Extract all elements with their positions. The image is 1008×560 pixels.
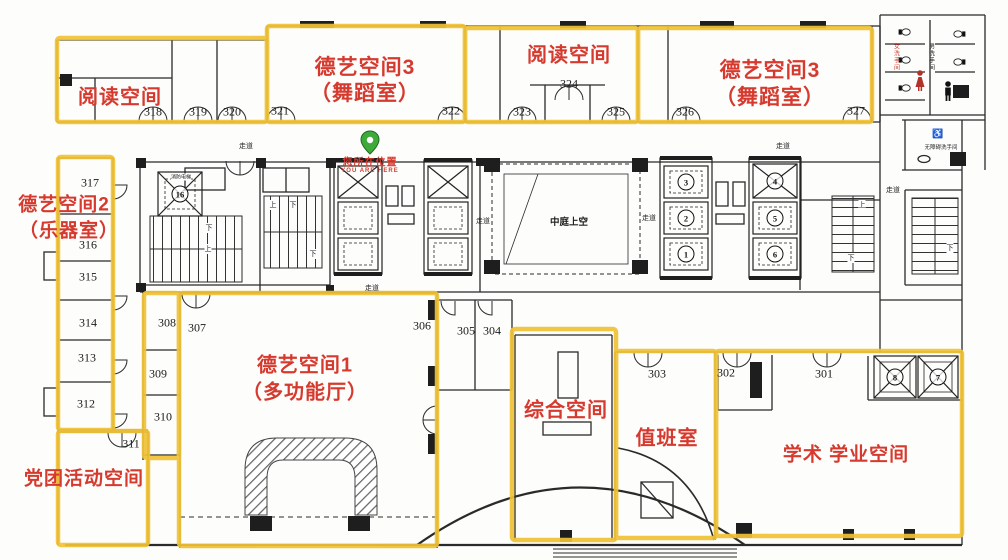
elevator-5-number: 5 (767, 210, 784, 227)
label-party-activity: 党团活动空间 (24, 464, 144, 491)
label-multifunction-line2: （多功能厅） (242, 376, 368, 405)
label-academic: 学术 学业空间 (783, 440, 909, 467)
room-number-325: 325 (607, 105, 625, 120)
label-instrument-line2: （乐器室） (19, 216, 119, 243)
room-number-310: 310 (154, 410, 172, 425)
label-fire-elevator: 消防电梯 (171, 174, 191, 181)
room-number-311: 311 (122, 437, 140, 452)
room-number-309: 309 (149, 367, 167, 382)
label-reading-space-mid: 阅读空间 (527, 39, 611, 68)
room-number-326: 326 (676, 105, 694, 120)
label-multifunction-line1: 德艺空间1 (257, 349, 353, 378)
label-dance-east-line2: （舞蹈室） (715, 81, 825, 111)
female-icon (916, 70, 925, 91)
label-corridor-3: 走道 (476, 216, 490, 226)
region-multifunction-hall (179, 293, 437, 546)
elevator-3-number: 3 (678, 174, 695, 191)
room-number-308: 308 (158, 316, 176, 331)
room-number-317: 317 (81, 176, 99, 191)
elevator-6-number: 6 (767, 246, 784, 263)
label-stairs-down-1: 下 (206, 223, 213, 233)
label-stairs-down-3: 下 (310, 249, 317, 259)
room-number-327: 327 (847, 104, 865, 119)
label-corridor-5: 走道 (776, 141, 790, 151)
you-are-here-pin (361, 131, 379, 154)
room-number-314: 314 (79, 316, 97, 331)
room-number-323: 323 (513, 105, 531, 120)
room-number-312: 312 (77, 397, 95, 412)
room-number-304: 304 (483, 324, 501, 339)
room-number-321: 321 (271, 104, 289, 119)
label-corridor-2: 走道 (365, 283, 379, 293)
room-number-319: 319 (189, 105, 207, 120)
elevator-16-number: 16 (172, 186, 189, 203)
elevator-1-number: 1 (678, 246, 695, 263)
room-number-313: 313 (78, 351, 96, 366)
label-womens-restroom: 女洗手间 (892, 43, 901, 71)
wheelchair-icon: ♿ (932, 129, 943, 140)
you-are-here-label-zh: 您所在位置 (343, 154, 398, 169)
label-accessible-restroom: 无障碍洗手间 (924, 143, 957, 151)
room-number-305: 305 (457, 324, 475, 339)
label-corridor-6: 走道 (886, 185, 900, 195)
floor-plan: 阅读空间 德艺空间3 （舞蹈室） 阅读空间 德艺空间3 （舞蹈室） 德艺空间2 … (0, 0, 1008, 560)
label-instrument-line1: 德艺空间2 (18, 190, 110, 217)
room-number-320: 320 (223, 105, 241, 120)
label-stairs-up-1: 上 (205, 244, 212, 254)
elevator-4-number: 4 (767, 173, 784, 190)
elevator-8-number: 8 (887, 369, 904, 386)
room-number-303: 303 (648, 367, 666, 382)
label-mens-restroom: 男洗手间 (927, 43, 936, 71)
label-dance-east-line1: 德艺空间3 (720, 54, 821, 84)
label-duty-room: 值班室 (636, 422, 699, 451)
label-reading-space-west: 阅读空间 (78, 81, 162, 110)
label-corridor-4: 走道 (642, 213, 656, 223)
stage-arch (245, 438, 377, 515)
room-number-322: 322 (442, 104, 460, 119)
label-corridor-1: 走道 (239, 141, 253, 151)
label-stairs-down-2: 下 (290, 200, 297, 210)
label-atrium: 中庭上空 (550, 214, 588, 228)
label-stairs-down-5: 下 (947, 243, 954, 253)
room-number-302: 302 (717, 366, 735, 381)
room-number-301: 301 (815, 367, 833, 382)
room-number-315: 315 (79, 270, 97, 285)
label-stairs-down-4: 下 (848, 253, 855, 263)
you-are-here-label-en: YOU ARE HERE (341, 168, 398, 174)
elevator-2-number: 2 (678, 210, 695, 227)
elevator-7-number: 7 (930, 369, 947, 386)
label-comprehensive: 综合空间 (524, 394, 608, 423)
label-stairs-up-2: 上 (270, 200, 277, 210)
room-number-306: 306 (413, 319, 431, 334)
room-number-324: 324 (560, 77, 578, 92)
walls (44, 15, 985, 557)
label-stairs-up-3: 上 (859, 200, 866, 210)
male-icon (945, 81, 951, 101)
room-number-307: 307 (188, 321, 206, 336)
label-dance-west-line2: （舞蹈室） (310, 77, 420, 107)
